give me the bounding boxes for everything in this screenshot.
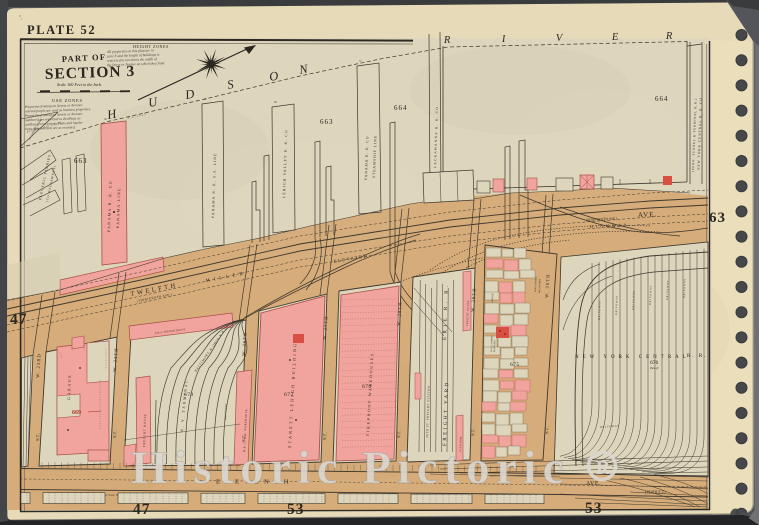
svg-text:E: E — [611, 32, 619, 43]
svg-text:BOAT WORKS: BOAT WORKS — [538, 278, 542, 293]
svg-text:R: R — [596, 457, 611, 479]
svg-text:663: 663 — [320, 118, 334, 126]
svg-text:675: 675 — [510, 362, 520, 368]
svg-text:(Sec.2): (Sec.2) — [650, 366, 658, 370]
svg-text:ST.: ST. — [544, 425, 550, 434]
svg-text:SUN CATSKILL: SUN CATSKILL — [534, 276, 538, 292]
svg-text:53: 53 — [585, 500, 603, 517]
svg-text:AVE.: AVE. — [586, 481, 601, 487]
svg-text:GARAGE: GARAGE — [491, 292, 494, 303]
svg-text:NEW YORK CENTRAL: NEW YORK CENTRAL — [575, 355, 690, 360]
svg-text:664: 664 — [394, 104, 408, 112]
svg-text:669: 669 — [72, 410, 81, 416]
svg-text:670: 670 — [362, 384, 372, 390]
svg-text:63: 63 — [709, 210, 726, 226]
svg-text:N.Y.C. LOADING: N.Y.C. LOADING — [490, 335, 494, 352]
svg-text:ST.: ST. — [112, 429, 118, 438]
svg-text:PLATFORM: PLATFORM — [493, 340, 496, 352]
svg-text:R: R — [443, 35, 451, 46]
svg-text:664: 664 — [655, 95, 669, 103]
svg-text:Scale 160 Feet to the Inch.: Scale 160 Feet to the Inch. — [57, 82, 102, 87]
svg-text:R. R.: R. R. — [687, 354, 707, 359]
svg-text:670: 670 — [184, 392, 194, 398]
svg-text:672: 672 — [284, 392, 294, 398]
svg-text:ST.: ST. — [241, 433, 247, 442]
svg-text:663: 663 — [74, 157, 88, 165]
svg-text:ST.: ST. — [396, 429, 402, 438]
svg-text:R: R — [665, 31, 673, 42]
svg-text:Historic Pictoric: Historic Pictoric — [131, 442, 570, 494]
svg-text:ST.: ST. — [322, 431, 328, 440]
svg-text:GARAGE: GARAGE — [66, 374, 72, 400]
svg-text:AVE.: AVE. — [638, 210, 658, 219]
svg-text:ST.: ST. — [35, 432, 41, 441]
svg-text:ST.: ST. — [470, 427, 476, 436]
svg-text:PLATE 52: PLATE 52 — [27, 23, 96, 37]
